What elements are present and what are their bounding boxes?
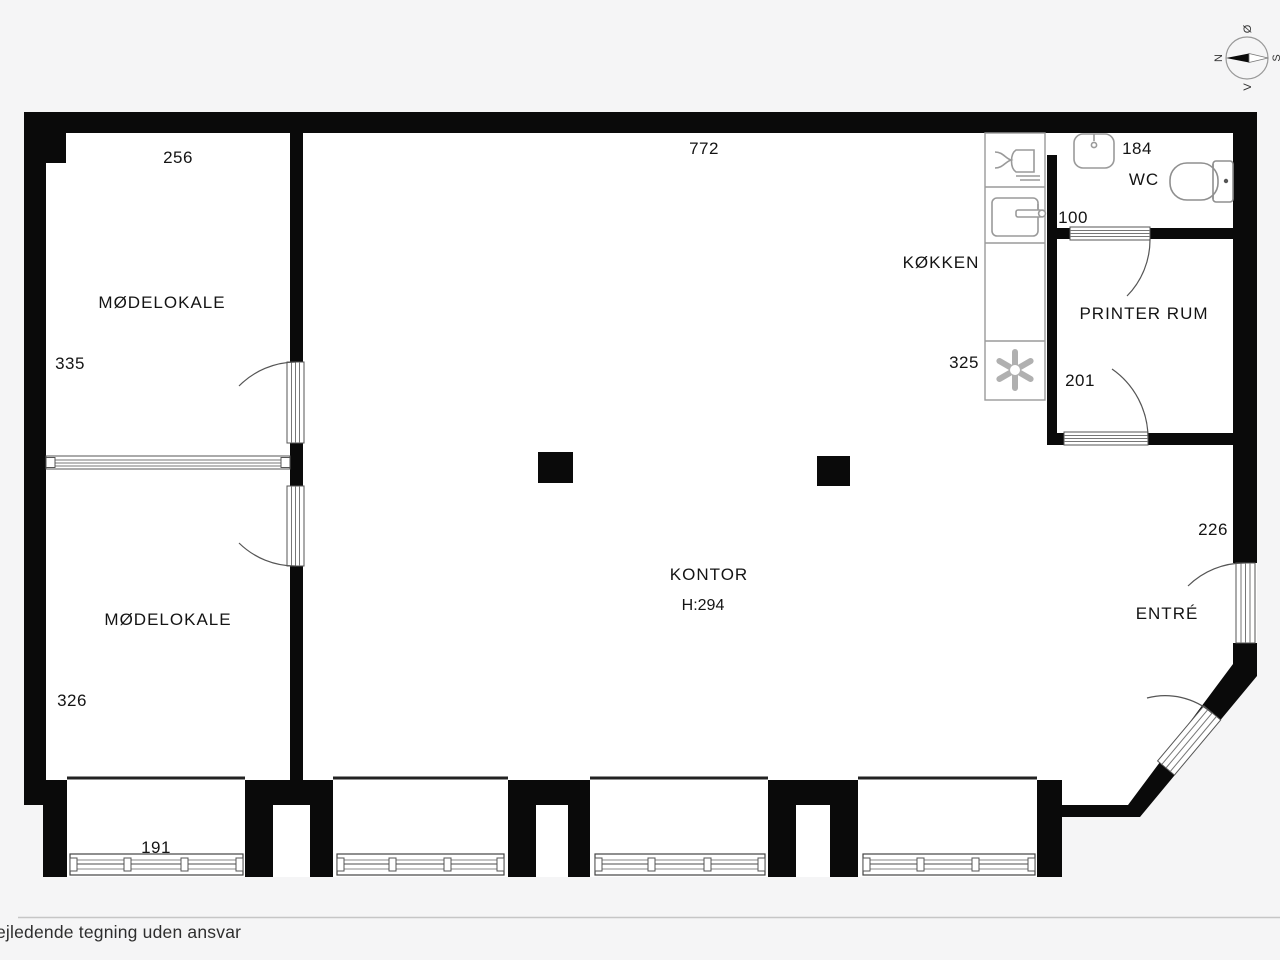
pier-e: [1037, 780, 1062, 877]
column-1: [538, 452, 573, 483]
wall-right-upper: [1233, 133, 1257, 563]
glass-partition: [46, 456, 290, 469]
dim-kitchen: 325: [949, 353, 979, 372]
window-bay4: [863, 854, 1035, 875]
window-bay1: [70, 854, 243, 875]
footer-disclaimer: ejledende tegning uden ansvar: [0, 922, 241, 942]
pier-c-leg1: [508, 805, 536, 877]
pier-a: [43, 780, 67, 877]
wall-top: [24, 112, 1257, 133]
floor-plan-canvas: 256 772 MØDELOKALE 335 MØDELOKALE 326 19…: [0, 0, 1280, 960]
room-label-kitchen: KØKKEN: [903, 253, 980, 272]
pier-b-bar: [245, 780, 333, 805]
dim-printer-door: 201: [1065, 371, 1095, 390]
dim-meeting2-depth: 326: [57, 691, 87, 710]
room-label-kontor: KONTOR: [670, 565, 748, 584]
kitchen-sink-icon: [992, 198, 1045, 236]
compass-s: S: [1271, 54, 1280, 61]
dim-kontor-height: H:294: [682, 597, 725, 614]
pier-d-bar: [768, 780, 858, 805]
pier-c-bar: [508, 780, 590, 805]
dim-meeting1-width: 256: [163, 148, 193, 167]
room-label-wc: WC: [1129, 170, 1159, 189]
compass-v: V: [1242, 83, 1254, 91]
toilet-icon: [1170, 161, 1233, 202]
wall-left: [24, 133, 46, 805]
compass-e: Ø: [1242, 24, 1254, 33]
pier-d-leg2: [830, 805, 858, 877]
wc-sink-icon: [1074, 134, 1114, 168]
pier-d-leg1: [768, 805, 796, 877]
room-label-printer: PRINTER RUM: [1079, 304, 1208, 323]
dim-wc-door: 100: [1058, 208, 1088, 227]
pier-b-leg2: [310, 805, 333, 877]
dim-bay-window: 191: [141, 838, 171, 857]
dim-meeting1-depth: 335: [55, 354, 85, 373]
dim-entry-door: 226: [1198, 520, 1228, 539]
pier-b-leg1: [245, 805, 273, 877]
compass-needle-north: [1226, 54, 1249, 63]
room-label-entry: ENTRÉ: [1136, 604, 1199, 623]
wall-partition-meeting-kontor: [290, 133, 303, 780]
wall-left-corner-block: [24, 133, 66, 163]
dim-wc-width: 184: [1122, 139, 1152, 158]
column-2: [817, 456, 850, 486]
room-label-meeting1: MØDELOKALE: [98, 293, 225, 312]
window-bay2: [337, 854, 504, 875]
pier-c-leg2: [568, 805, 590, 877]
compass: N Ø S V: [1213, 24, 1280, 90]
window-bay3: [595, 854, 765, 875]
floor-plan-page: 256 772 MØDELOKALE 335 MØDELOKALE 326 19…: [0, 0, 1280, 960]
room-label-meeting2: MØDELOKALE: [104, 610, 231, 629]
compass-n: N: [1213, 54, 1225, 62]
wall-kitchen-printer: [1047, 155, 1057, 445]
dim-kontor-width: 772: [689, 139, 719, 158]
compass-needle-south: [1249, 54, 1268, 63]
